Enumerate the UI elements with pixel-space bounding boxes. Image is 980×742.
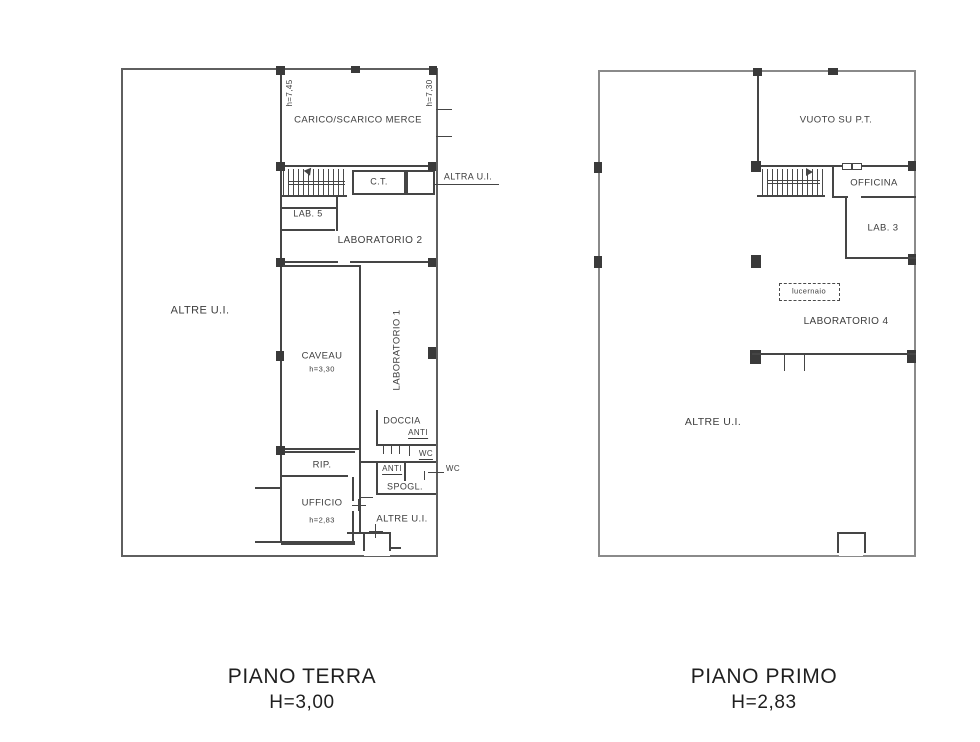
door-block: [842, 163, 852, 170]
wall: [282, 165, 435, 167]
height-label-730: h=7,30: [426, 79, 434, 106]
room-label-carico-scarico: CARICO/SCARICO MERCE: [294, 115, 422, 125]
wall: [282, 451, 355, 453]
leader-line: [428, 472, 444, 473]
wall: [757, 72, 759, 167]
wall: [376, 410, 378, 446]
stair-rail: [288, 172, 289, 185]
fixture-tick: [409, 446, 410, 456]
pillar: [594, 162, 602, 173]
wall: [350, 261, 436, 263]
wall: [280, 489, 282, 543]
pillar: [428, 258, 436, 267]
pillar: [908, 254, 916, 265]
room-label-laboratorio4: LABORATORIO 4: [804, 317, 889, 327]
wall: [255, 541, 282, 543]
pillar: [429, 66, 437, 75]
room-label-laboratorio2: LABORATORIO 2: [338, 236, 423, 246]
wall: [757, 165, 915, 167]
wall: [376, 493, 436, 495]
wall: [837, 532, 839, 553]
wall: [352, 511, 354, 543]
pillar: [351, 66, 360, 73]
door-mark: [804, 355, 805, 371]
pillar: [428, 162, 436, 171]
staircase: [762, 169, 824, 195]
room-label-officina: OFFICINA: [850, 178, 898, 188]
wall: [283, 265, 361, 267]
staircase: [283, 169, 345, 195]
wall: [391, 547, 401, 549]
pillar: [594, 256, 602, 268]
room-label-altre-ui: ALTRE U.I.: [685, 417, 741, 428]
stair-rail: [767, 180, 820, 181]
height-label-745: h=7,45: [286, 79, 294, 106]
notch-gap: [839, 550, 863, 556]
window-tick: [436, 109, 452, 110]
wall: [283, 448, 361, 450]
pillar: [907, 350, 916, 363]
door-mark: [375, 524, 376, 538]
room-label-wc-2: WC: [446, 465, 460, 473]
room-label-ct: C.T.: [370, 178, 388, 187]
fixture-tick: [391, 446, 392, 454]
room-label-altra-ui: ALTRA U.I.: [444, 173, 492, 182]
room-label-ufficio: UFFICIO: [302, 498, 343, 508]
plan-title-piano-primo: PIANO PRIMO: [691, 666, 838, 687]
pillar: [276, 162, 285, 171]
stair-arrow-icon: [806, 168, 813, 176]
stair-rail: [767, 172, 768, 184]
pillar: [428, 347, 436, 359]
pillar: [753, 68, 762, 76]
wall: [336, 195, 338, 231]
wall: [280, 70, 282, 490]
wall: [360, 497, 373, 498]
door-mark: [352, 505, 366, 506]
room-label-rip: RIP.: [313, 460, 332, 470]
room-label-laboratorio1: LABORATORIO 1: [392, 310, 402, 391]
wall: [832, 167, 834, 198]
room-label-lab3: LAB. 3: [868, 223, 899, 233]
wall: [376, 444, 436, 446]
plan-height-piano-primo: H=2,83: [731, 693, 796, 712]
fixture-tick: [383, 446, 384, 454]
fixture-tick: [424, 471, 425, 480]
wall: [845, 198, 847, 259]
wall: [845, 257, 916, 259]
pillar: [751, 161, 761, 172]
leader-line: [433, 184, 499, 185]
wall: [363, 532, 391, 534]
room-label-spogl: SPOGL.: [387, 483, 423, 492]
window-tick: [436, 136, 452, 137]
wall: [359, 265, 361, 533]
pillar: [276, 351, 284, 361]
wall: [282, 475, 348, 477]
room-label-lucernaio: lucernaio: [792, 287, 826, 295]
wall: [347, 532, 363, 534]
pillar: [751, 255, 761, 268]
wall: [363, 532, 365, 551]
door-mark: [784, 355, 785, 371]
wall: [861, 196, 916, 198]
wall: [864, 532, 866, 553]
wall: [282, 229, 335, 231]
entrance-gap: [364, 550, 390, 556]
height-label-caveau: h=3,30: [309, 365, 335, 373]
room-label-vuoto: VUOTO SU P.T.: [800, 115, 872, 125]
wall: [376, 463, 378, 495]
wall: [282, 261, 338, 263]
pillar: [276, 446, 285, 455]
wall: [281, 541, 355, 545]
wall: [757, 195, 825, 197]
room-label-anti-1: ANTI: [408, 429, 428, 439]
room-label-doccia: DOCCIA: [383, 417, 420, 426]
wall: [361, 461, 436, 463]
pillar: [908, 161, 916, 171]
room-label-anti-2: ANTI: [382, 465, 402, 475]
fixture-tick: [399, 446, 400, 454]
plan-title-piano-terra: PIANO TERRA: [228, 666, 377, 687]
plan-height-piano-terra: H=3,00: [269, 693, 334, 712]
stair-rail: [288, 181, 345, 182]
door-leaf: [404, 463, 406, 481]
stair-rail: [288, 184, 345, 185]
wall: [352, 477, 354, 501]
room-outline-altra-ui: [406, 170, 435, 195]
wall: [752, 353, 916, 355]
room-label-wc-1: WC: [419, 450, 433, 460]
height-label-ufficio: h=2,83: [309, 516, 335, 524]
floorplan-canvas: ALTRE U.I. CARICO/SCARICO MERCE h=7,45 h…: [0, 0, 980, 742]
room-label-caveau: CAVEAU: [302, 351, 343, 361]
door-block: [852, 163, 862, 170]
pillar: [828, 68, 838, 75]
room-label-lab5: LAB. 5: [293, 210, 322, 219]
room-label-altre-ui: ALTRE U.I.: [171, 306, 230, 317]
room-label-altre-ui-2: ALTRE U.I.: [376, 514, 427, 524]
door-mark: [358, 499, 359, 511]
stair-rail: [767, 183, 820, 184]
wall: [255, 487, 282, 489]
pillar: [276, 66, 285, 75]
wall: [837, 532, 866, 534]
door-mark: [369, 531, 383, 532]
